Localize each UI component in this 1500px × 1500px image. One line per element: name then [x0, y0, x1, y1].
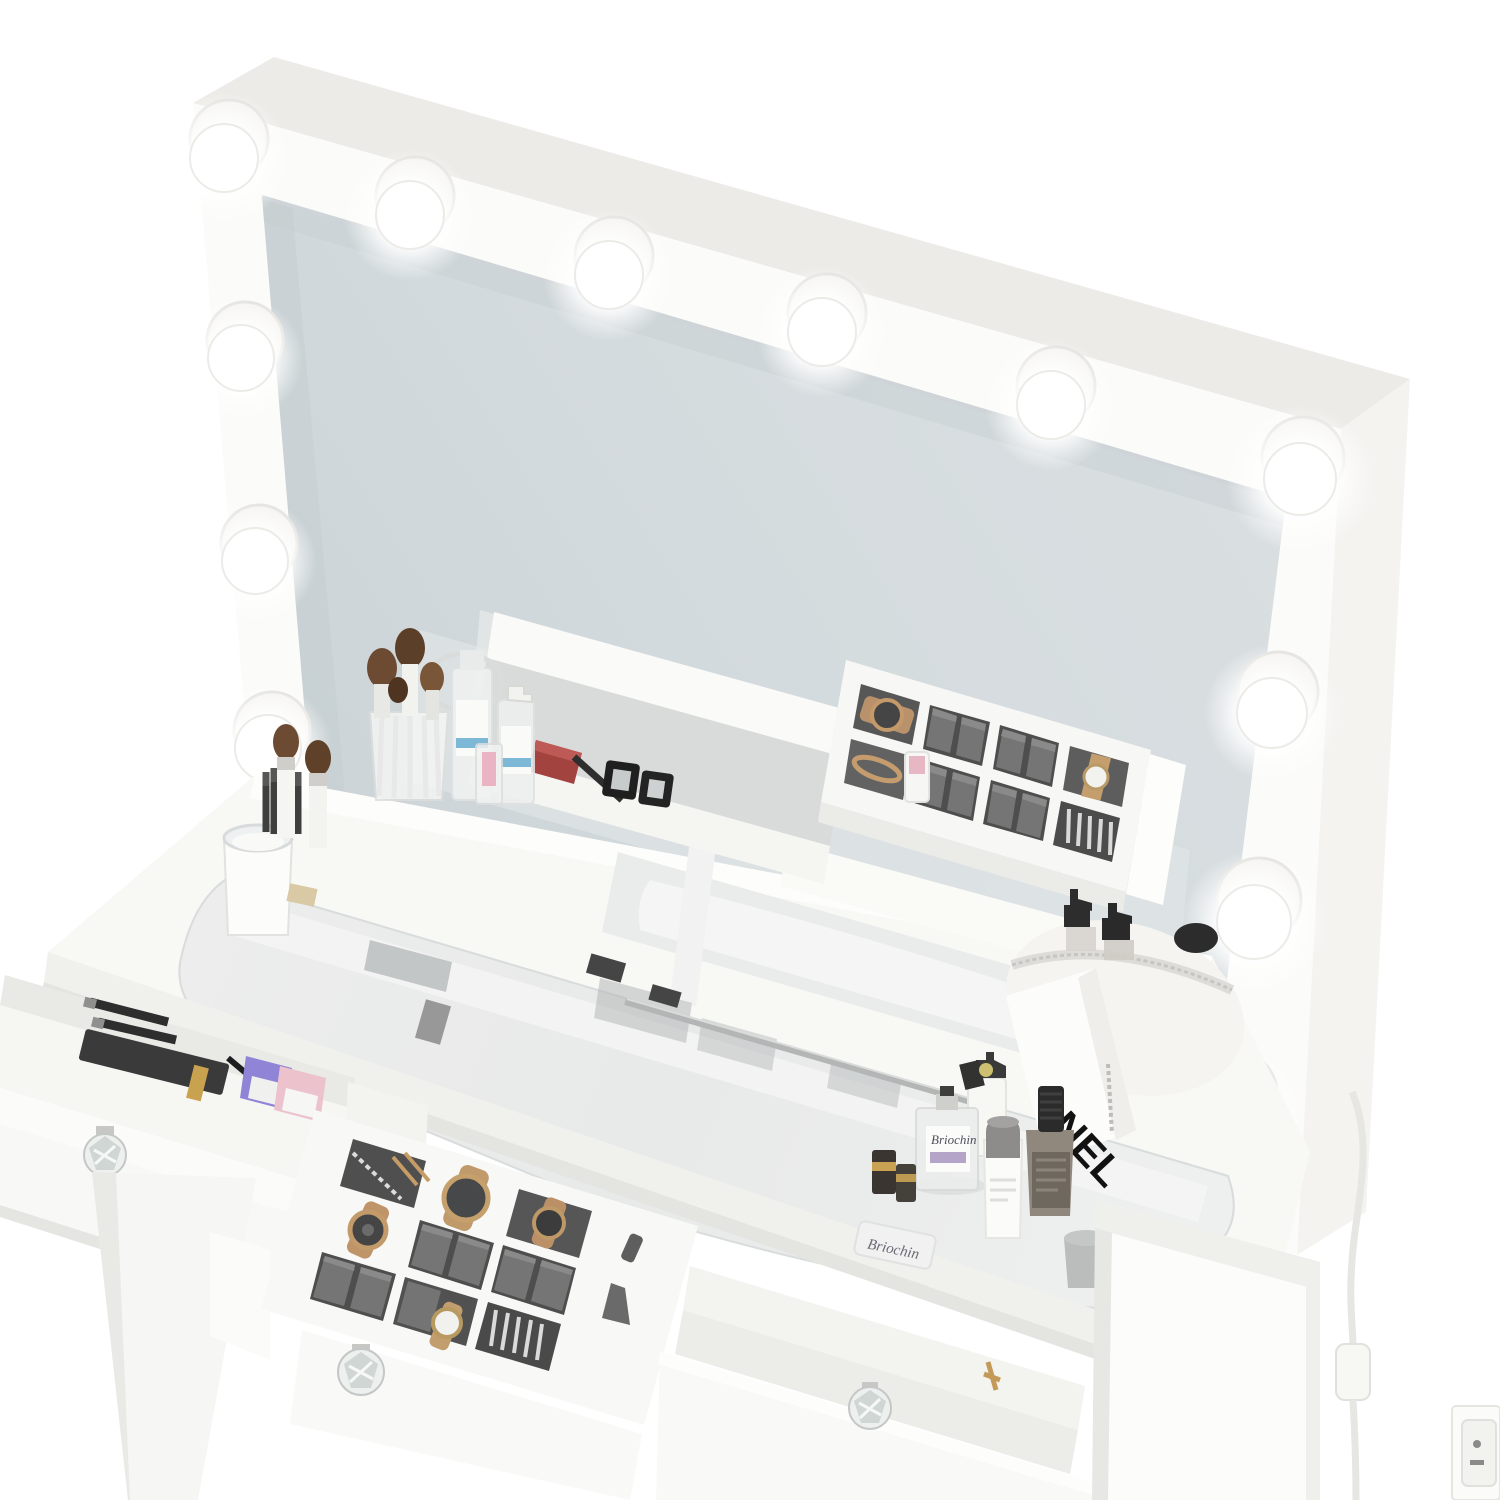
svg-text:Briochin: Briochin: [931, 1132, 977, 1147]
